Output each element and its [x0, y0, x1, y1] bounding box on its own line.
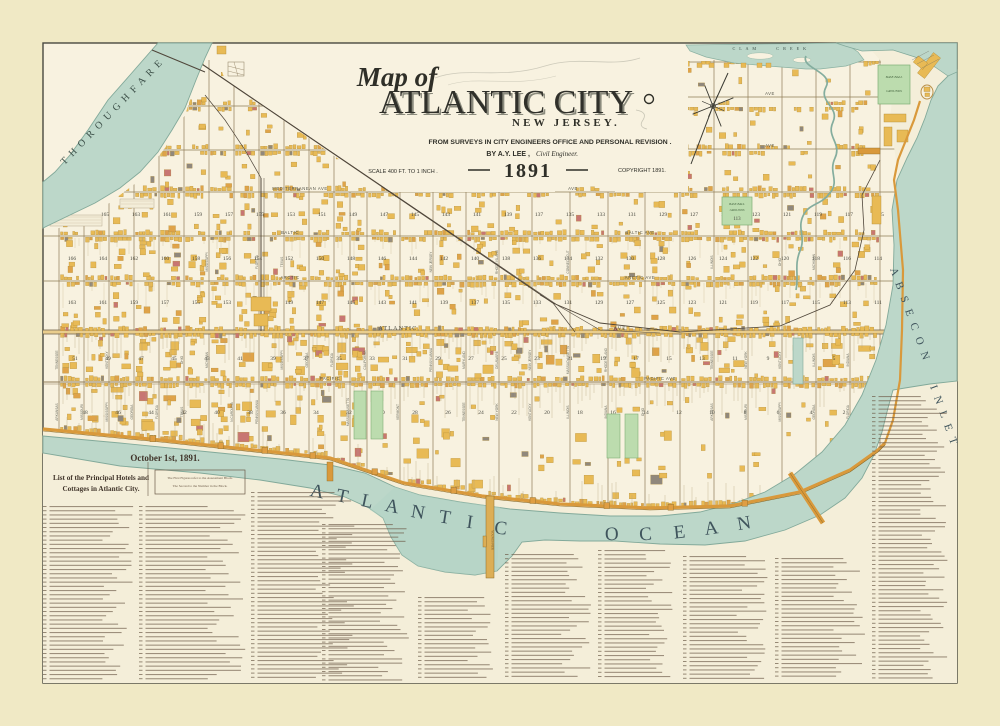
- svg-text:BY A.Y. LEE ,: BY A.Y. LEE ,: [486, 151, 530, 158]
- svg-text:116: 116: [843, 256, 851, 262]
- svg-text:BASE BALL: BASE BALL: [886, 75, 903, 79]
- svg-text:24: 24: [478, 410, 484, 416]
- svg-text:FLORIDA: FLORIDA: [155, 404, 159, 419]
- svg-text:ARKANSAS: ARKANSAS: [710, 403, 714, 420]
- svg-text:The First Figures refer to the: The First Figures refer to the Assessmen…: [167, 476, 233, 480]
- svg-text:AVE: AVE: [765, 91, 775, 96]
- svg-text:MICHIGAN: MICHIGAN: [812, 253, 816, 270]
- svg-text:142: 142: [440, 256, 449, 262]
- svg-text:111: 111: [874, 300, 882, 306]
- svg-text:E: E: [673, 521, 687, 543]
- svg-text:MISSISSIPPI: MISSISSIPPI: [778, 402, 782, 421]
- svg-text:155: 155: [192, 300, 201, 306]
- svg-text:161: 161: [99, 300, 108, 306]
- svg-text:138: 138: [502, 256, 511, 262]
- svg-text:1891: 1891: [504, 160, 552, 182]
- svg-text:23: 23: [534, 356, 540, 362]
- svg-text:51: 51: [72, 356, 78, 362]
- svg-text:123: 123: [688, 300, 697, 306]
- svg-text:149: 149: [285, 300, 294, 306]
- svg-text:GEORGIA: GEORGIA: [130, 404, 134, 420]
- svg-text:44: 44: [148, 410, 154, 416]
- svg-text:MISSISSIPPI: MISSISSIPPI: [205, 252, 209, 271]
- svg-text:114: 114: [874, 256, 882, 262]
- svg-text:BASE BALL: BASE BALL: [729, 202, 745, 206]
- svg-text:161: 161: [163, 212, 172, 218]
- svg-text:156: 156: [223, 256, 232, 262]
- svg-text:TEXAS: TEXAS: [180, 407, 184, 417]
- svg-text:26: 26: [445, 410, 451, 416]
- svg-text:MARYLAND: MARYLAND: [462, 350, 466, 368]
- svg-text:121: 121: [719, 300, 728, 306]
- svg-text:35: 35: [336, 356, 342, 362]
- svg-text:ILLINOIS: ILLINOIS: [710, 255, 714, 268]
- svg-text:NEW JERSEY.: NEW JERSEY.: [512, 117, 620, 129]
- svg-text:141: 141: [473, 212, 482, 218]
- svg-text:BALTIC AVE: BALTIC AVE: [625, 230, 654, 235]
- svg-text:143: 143: [378, 300, 387, 306]
- svg-text:October 1st, 1891.: October 1st, 1891.: [130, 453, 199, 463]
- svg-text:NEW JERSEY: NEW JERSEY: [429, 251, 433, 273]
- svg-text:18: 18: [577, 410, 583, 416]
- svg-text:137: 137: [471, 300, 480, 306]
- svg-text:133: 133: [597, 212, 606, 218]
- svg-text:9: 9: [767, 356, 770, 362]
- svg-text:117: 117: [845, 212, 853, 218]
- svg-text:GROUNDS: GROUNDS: [886, 89, 902, 93]
- svg-text:NEW YORK: NEW YORK: [744, 350, 748, 368]
- svg-text:159: 159: [130, 300, 139, 306]
- svg-text:121: 121: [783, 212, 792, 218]
- svg-text:135: 135: [502, 300, 511, 306]
- svg-text:Cottages in Atlantic City.: Cottages in Atlantic City.: [62, 485, 139, 493]
- svg-text:MICHIGAN: MICHIGAN: [205, 351, 209, 368]
- svg-text:136: 136: [533, 256, 542, 262]
- svg-text:132: 132: [595, 256, 604, 262]
- svg-text:VERMONT: VERMONT: [396, 404, 400, 420]
- svg-text:28: 28: [412, 410, 418, 416]
- svg-text:FLORIDA: FLORIDA: [330, 352, 334, 367]
- svg-text:C: C: [639, 524, 653, 546]
- svg-text:135: 135: [566, 212, 575, 218]
- svg-text:144: 144: [409, 256, 418, 262]
- svg-text:41: 41: [237, 356, 243, 362]
- svg-text:34: 34: [313, 410, 319, 416]
- svg-text:CALIFORNIA: CALIFORNIA: [363, 350, 367, 370]
- svg-text:146: 146: [378, 256, 387, 262]
- svg-text:162: 162: [130, 256, 139, 262]
- svg-text:OHIO: OHIO: [778, 257, 782, 266]
- svg-text:NEW YORK: NEW YORK: [495, 402, 499, 420]
- svg-text:ILLINOIS: ILLINOIS: [812, 353, 816, 366]
- svg-text:20: 20: [544, 410, 550, 416]
- svg-text:KENTUCKY: KENTUCKY: [778, 350, 782, 368]
- svg-text:DELAWARE: DELAWARE: [495, 351, 499, 369]
- svg-text:INDIANA: INDIANA: [846, 353, 850, 367]
- svg-text:147: 147: [316, 300, 325, 306]
- svg-text:TEXAS: TEXAS: [280, 257, 284, 267]
- svg-text:COPYRIGHT 1891.: COPYRIGHT 1891.: [618, 168, 666, 174]
- svg-text:C: C: [493, 517, 508, 539]
- svg-text:127: 127: [626, 300, 635, 306]
- svg-text:29: 29: [435, 356, 441, 362]
- svg-text:MISSOURI: MISSOURI: [744, 404, 748, 420]
- svg-text:PACIFIC AVE: PACIFIC AVE: [644, 376, 676, 381]
- svg-text:120: 120: [781, 256, 790, 262]
- svg-text:ILLINOIS: ILLINOIS: [566, 405, 570, 418]
- svg-text:131: 131: [628, 212, 637, 218]
- svg-text:153: 153: [223, 300, 232, 306]
- svg-text:C L A M: C L A M: [732, 46, 757, 51]
- svg-text:150: 150: [316, 256, 325, 262]
- svg-text:130: 130: [626, 256, 635, 262]
- svg-text:117: 117: [781, 300, 789, 306]
- svg-text:MEDITERRANEAN AVE: MEDITERRANEAN AVE: [272, 186, 328, 191]
- svg-text:KENTUCKY: KENTUCKY: [528, 402, 532, 420]
- svg-text:139: 139: [440, 300, 449, 306]
- svg-text:40: 40: [214, 410, 220, 416]
- svg-text:38: 38: [247, 410, 253, 416]
- svg-text:TENNESSEE: TENNESSEE: [710, 350, 714, 369]
- svg-text:27: 27: [468, 356, 474, 362]
- svg-text:11: 11: [732, 356, 738, 362]
- svg-text:NEW JERSEY: NEW JERSEY: [528, 349, 532, 371]
- svg-text:SCALE 400 FT. TO 1 INCH .: SCALE 400 FT. TO 1 INCH .: [368, 169, 438, 175]
- svg-text:TENNESSEE: TENNESSEE: [55, 350, 59, 369]
- svg-text:RHODE ISLAND: RHODE ISLAND: [604, 347, 608, 372]
- svg-text:151: 151: [318, 212, 327, 218]
- svg-text:ATLANTIC CITY: ATLANTIC CITY: [379, 84, 633, 121]
- svg-text:131: 131: [564, 300, 573, 306]
- svg-text:129: 129: [659, 212, 668, 218]
- svg-text:115: 115: [812, 300, 820, 306]
- svg-text:OHIO: OHIO: [641, 407, 645, 416]
- svg-text:ATLANTIC: ATLANTIC: [379, 326, 418, 332]
- svg-text:143: 143: [442, 212, 451, 218]
- svg-text:148: 148: [347, 256, 356, 262]
- svg-text:163: 163: [132, 212, 141, 218]
- svg-text:MISSISSIPPI: MISSISSIPPI: [105, 402, 109, 421]
- svg-text:MASSACHUSETTS: MASSACHUSETTS: [566, 346, 570, 374]
- svg-text:ARCTIC AVE: ARCTIC AVE: [625, 275, 656, 280]
- svg-text:113: 113: [843, 300, 851, 306]
- svg-text:39: 39: [270, 356, 276, 362]
- svg-text:GEORGIA: GEORGIA: [305, 352, 309, 368]
- svg-text:149: 149: [349, 212, 358, 218]
- svg-text:139: 139: [504, 212, 513, 218]
- svg-text:FLORIDA: FLORIDA: [255, 254, 259, 269]
- svg-text:147: 147: [380, 212, 389, 218]
- svg-text:166: 166: [68, 256, 77, 262]
- svg-text:GEORGIA: GEORGIA: [812, 404, 816, 420]
- svg-text:C R E E K: C R E E K: [776, 46, 807, 51]
- svg-text:163: 163: [68, 300, 77, 306]
- svg-text:119: 119: [814, 212, 822, 218]
- svg-text:126: 126: [688, 256, 697, 262]
- svg-text:25: 25: [501, 356, 507, 362]
- svg-text:MASSACHUSETTS: MASSACHUSETTS: [346, 398, 350, 426]
- svg-text:FROM SURVEYS IN CITY ENGINEERS: FROM SURVEYS IN CITY ENGINEERS OFFICE AN…: [429, 139, 672, 146]
- svg-text:160: 160: [161, 256, 170, 262]
- svg-text:GROUNDS: GROUNDS: [730, 208, 745, 212]
- svg-text:113: 113: [733, 217, 741, 222]
- svg-text:155: 155: [256, 212, 265, 218]
- svg-text:36: 36: [280, 410, 286, 416]
- svg-text:157: 157: [161, 300, 170, 306]
- svg-text:AVE: AVE: [765, 143, 775, 148]
- svg-text:158: 158: [192, 256, 201, 262]
- svg-text:TENNESSEE: TENNESSEE: [462, 402, 466, 421]
- svg-text:5: 5: [833, 356, 836, 362]
- svg-text:119: 119: [750, 300, 758, 306]
- svg-text:MISSOURI: MISSOURI: [80, 404, 84, 420]
- svg-text:RHODE ISLAND: RHODE ISLAND: [495, 249, 499, 274]
- svg-text:KENTUCKY: KENTUCKY: [105, 350, 109, 368]
- svg-text:122: 122: [750, 256, 759, 262]
- svg-text:153: 153: [287, 212, 296, 218]
- svg-text:List of the Principal Hotels a: List of the Principal Hotels and: [53, 474, 149, 482]
- svg-text:Civil Engineer.: Civil Engineer.: [536, 150, 578, 158]
- svg-text:124: 124: [719, 256, 728, 262]
- svg-text:129: 129: [595, 300, 604, 306]
- svg-text:ARCTIC: ARCTIC: [280, 275, 299, 280]
- svg-text:47: 47: [138, 356, 144, 362]
- svg-text:OHIO: OHIO: [180, 355, 184, 364]
- svg-text:13: 13: [699, 356, 705, 362]
- svg-text:127: 127: [690, 212, 699, 218]
- svg-text:The Second to the Number in th: The Second to the Number in the Block.: [173, 484, 228, 488]
- svg-text:123: 123: [752, 212, 761, 218]
- svg-text:46: 46: [115, 410, 121, 416]
- svg-text:141: 141: [409, 300, 418, 306]
- svg-text:33: 33: [369, 356, 375, 362]
- svg-text:159: 159: [194, 212, 203, 218]
- svg-text:31: 31: [402, 356, 408, 362]
- svg-text:128: 128: [657, 256, 666, 262]
- svg-text:22: 22: [511, 410, 517, 416]
- svg-text:PACIFIC: PACIFIC: [320, 376, 340, 381]
- svg-text:MISSISSIPPI: MISSISSIPPI: [280, 350, 284, 369]
- svg-text:137: 137: [535, 212, 544, 218]
- svg-text:CONNECTICUT: CONNECTICUT: [566, 250, 570, 273]
- svg-text:145: 145: [347, 300, 356, 306]
- svg-text:N CAROLINA: N CAROLINA: [230, 401, 234, 421]
- svg-text:O: O: [605, 524, 619, 545]
- svg-text:125: 125: [657, 300, 666, 306]
- svg-text:BALTIC: BALTIC: [281, 230, 299, 235]
- svg-text:45: 45: [171, 356, 177, 362]
- svg-text:145: 145: [411, 212, 420, 218]
- svg-text:152: 152: [285, 256, 294, 262]
- svg-text:157: 157: [225, 212, 234, 218]
- svg-text:133: 133: [533, 300, 542, 306]
- svg-text:140: 140: [471, 256, 480, 262]
- svg-text:AVE: AVE: [568, 186, 578, 191]
- svg-text:15: 15: [666, 356, 672, 362]
- svg-text:ARKANSAS: ARKANSAS: [55, 403, 59, 420]
- svg-text:164: 164: [99, 256, 108, 262]
- svg-text:PENNSYLVANIA: PENNSYLVANIA: [429, 347, 433, 372]
- svg-text:PENNSYLVANIA: PENNSYLVANIA: [255, 399, 259, 424]
- svg-text:17: 17: [633, 356, 639, 362]
- svg-text:12: 12: [676, 410, 682, 416]
